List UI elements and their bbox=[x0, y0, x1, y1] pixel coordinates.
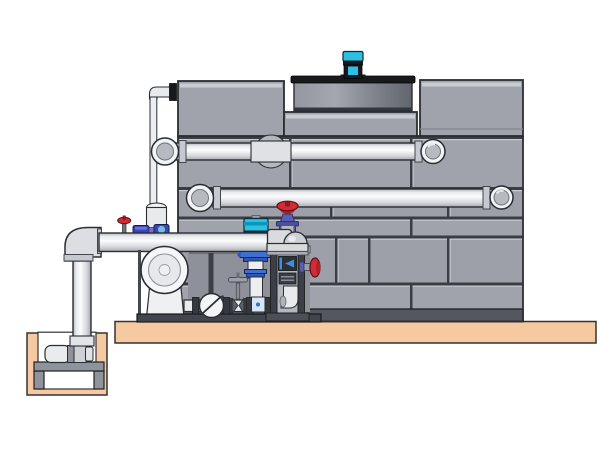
turbine-pump-motor bbox=[244, 216, 268, 235]
sump-pump-stand bbox=[34, 362, 104, 371]
diagram-canvas bbox=[0, 0, 600, 450]
fan-motor bbox=[341, 52, 366, 81]
gate-valve-handle bbox=[229, 278, 248, 283]
fan-shroud bbox=[291, 76, 415, 111]
lower-supply-pipe bbox=[187, 185, 514, 212]
vent-flange bbox=[170, 84, 177, 101]
pipe-stand bbox=[266, 244, 309, 322]
concrete-slab bbox=[27, 322, 596, 396]
cooling-tower-diagram bbox=[0, 0, 600, 450]
riser-pipe bbox=[64, 228, 102, 347]
pipe-sleeve bbox=[251, 141, 291, 162]
end-suction-pump bbox=[138, 247, 188, 319]
